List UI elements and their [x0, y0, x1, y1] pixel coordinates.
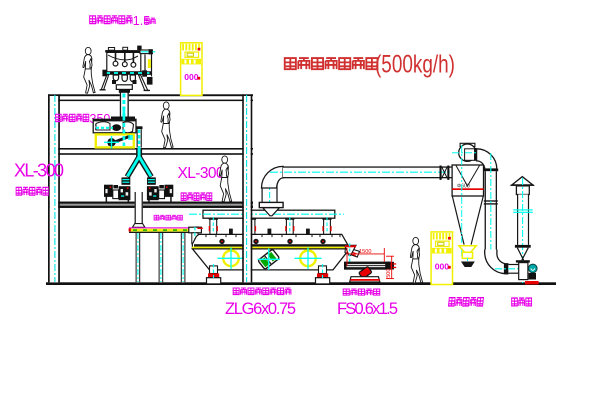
svg-text:FS0.6x1.5: FS0.6x1.5	[337, 300, 398, 318]
svg-text:XL-300: XL-300	[178, 165, 225, 182]
svg-text:1.5: 1.5	[133, 14, 150, 28]
svg-text:XL-300: XL-300	[14, 161, 64, 181]
svg-text:1500: 1500	[359, 249, 371, 255]
svg-text:Φ600: Φ600	[457, 184, 470, 190]
svg-text:ZLG6x0.75: ZLG6x0.75	[225, 300, 296, 318]
svg-text:(500kg/h): (500kg/h)	[375, 51, 455, 79]
svg-text:500: 500	[386, 268, 392, 277]
